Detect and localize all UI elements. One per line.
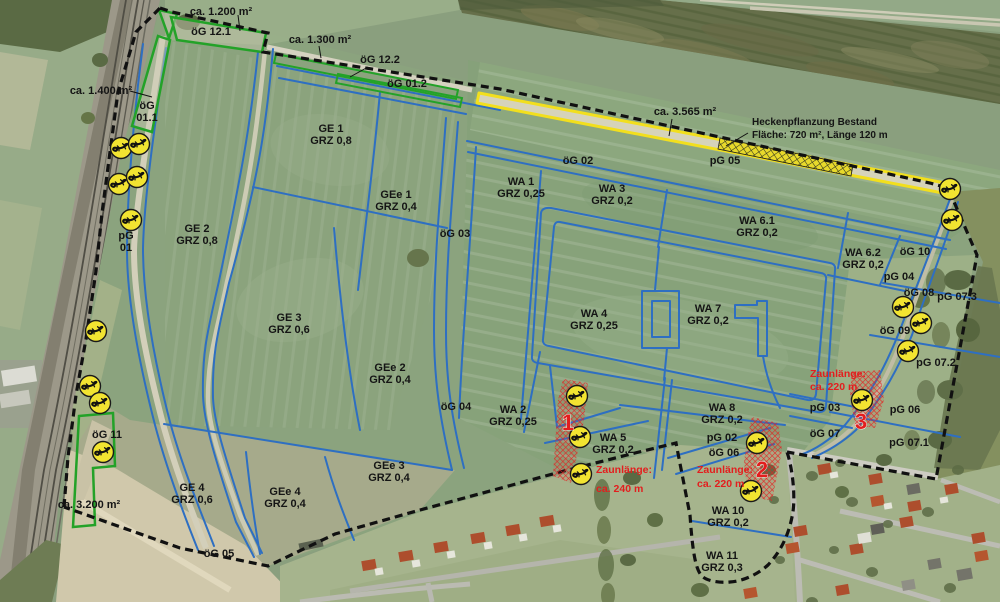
svg-text:GRZ 0,3: GRZ 0,3 [701, 562, 743, 574]
svg-text:Fläche: 720 m², Länge 120 m: Fläche: 720 m², Länge 120 m [752, 130, 888, 141]
svg-text:Zaunlänge:: Zaunlänge: [596, 464, 652, 476]
svg-text:ca. 220 m: ca. 220 m [697, 478, 744, 490]
svg-text:GRZ 0,2: GRZ 0,2 [591, 195, 633, 207]
svg-text:öG 03: öG 03 [440, 228, 471, 240]
svg-text:Heckenpflanzung Bestand: Heckenpflanzung Bestand [752, 117, 877, 128]
svg-text:GRZ 0,25: GRZ 0,25 [570, 320, 618, 332]
svg-text:Zaunlänge:: Zaunlänge: [697, 464, 753, 476]
svg-text:öG 10: öG 10 [900, 246, 931, 258]
svg-text:GEe 4: GEe 4 [269, 486, 301, 498]
svg-text:WA 6.1: WA 6.1 [739, 215, 775, 227]
svg-text:01.1: 01.1 [136, 112, 157, 124]
svg-text:öG 08: öG 08 [904, 287, 935, 299]
svg-text:GRZ 0,4: GRZ 0,4 [368, 472, 410, 484]
svg-text:öG 06: öG 06 [709, 447, 740, 459]
svg-text:pG: pG [118, 230, 133, 242]
svg-text:GRZ 0,2: GRZ 0,2 [592, 444, 634, 456]
svg-text:GE 3: GE 3 [276, 312, 301, 324]
svg-text:öG 09: öG 09 [880, 325, 911, 337]
svg-text:GRZ 0,2: GRZ 0,2 [701, 414, 743, 426]
svg-text:WA 11: WA 11 [706, 550, 738, 562]
svg-text:GRZ 0,4: GRZ 0,4 [375, 201, 417, 213]
svg-text:öG: öG [139, 100, 154, 112]
svg-text:pG 07.2: pG 07.2 [916, 357, 956, 369]
svg-text:GRZ 0,2: GRZ 0,2 [842, 259, 884, 271]
svg-text:GRZ 0,25: GRZ 0,25 [497, 188, 545, 200]
svg-text:GEe 2: GEe 2 [374, 362, 405, 374]
svg-text:öG 02: öG 02 [563, 155, 594, 167]
svg-text:öG 11: öG 11 [92, 429, 122, 441]
svg-text:ca. 1.400 m²: ca. 1.400 m² [70, 85, 133, 97]
svg-text:GRZ 0,2: GRZ 0,2 [707, 517, 749, 529]
svg-text:GRZ 0,25: GRZ 0,25 [489, 416, 537, 428]
svg-text:GEe 3: GEe 3 [373, 460, 404, 472]
svg-text:ca. 1.200 m²: ca. 1.200 m² [190, 6, 253, 18]
svg-text:Zaunlänge:: Zaunlänge: [810, 368, 866, 380]
svg-text:WA 5: WA 5 [600, 432, 627, 444]
svg-text:öG 01.2: öG 01.2 [387, 78, 427, 90]
svg-text:GRZ 0,2: GRZ 0,2 [736, 227, 778, 239]
svg-text:öG 07: öG 07 [810, 428, 841, 440]
svg-text:WA 3: WA 3 [599, 183, 626, 195]
svg-text:GRZ 0,4: GRZ 0,4 [264, 498, 306, 510]
svg-text:pG 05: pG 05 [710, 155, 741, 167]
svg-text:öG 04: öG 04 [441, 401, 472, 413]
svg-text:GE 1: GE 1 [318, 123, 343, 135]
svg-text:GRZ 0,8: GRZ 0,8 [176, 235, 218, 247]
svg-text:ca. 220 m: ca. 220 m [810, 381, 857, 393]
svg-text:ca. 1.300 m²: ca. 1.300 m² [289, 34, 352, 46]
svg-text:ca. 3.200 m²: ca. 3.200 m² [58, 499, 121, 511]
svg-text:WA 10: WA 10 [712, 505, 745, 517]
svg-text:GRZ 0,6: GRZ 0,6 [171, 494, 213, 506]
svg-text:GEe 1: GEe 1 [380, 189, 411, 201]
svg-text:GRZ 0,4: GRZ 0,4 [369, 374, 411, 386]
svg-text:öG 05: öG 05 [204, 548, 235, 560]
svg-text:WA 4: WA 4 [581, 308, 608, 320]
svg-text:GE 4: GE 4 [179, 482, 205, 494]
svg-text:ca. 240 m: ca. 240 m [596, 483, 643, 495]
svg-text:01: 01 [120, 242, 132, 254]
svg-text:GRZ 0,6: GRZ 0,6 [268, 324, 310, 336]
svg-text:WA 7: WA 7 [695, 303, 722, 315]
svg-text:pG 04: pG 04 [884, 271, 915, 283]
svg-text:pG 07.3: pG 07.3 [937, 291, 977, 303]
svg-text:pG 02: pG 02 [707, 432, 738, 444]
svg-text:GE 2: GE 2 [184, 223, 209, 235]
svg-text:2: 2 [756, 457, 768, 482]
svg-text:3: 3 [855, 409, 867, 434]
svg-text:WA 2: WA 2 [500, 404, 527, 416]
svg-text:pG 03: pG 03 [810, 402, 841, 414]
svg-text:WA 1: WA 1 [508, 176, 535, 188]
svg-text:GRZ 0,8: GRZ 0,8 [310, 135, 352, 147]
svg-text:GRZ 0,2: GRZ 0,2 [687, 315, 729, 327]
svg-text:WA 6.2: WA 6.2 [845, 247, 881, 259]
svg-text:pG 07.1: pG 07.1 [889, 437, 929, 449]
svg-text:ca. 3.565 m²: ca. 3.565 m² [654, 106, 717, 118]
svg-text:pG 06: pG 06 [890, 404, 921, 416]
svg-text:WA 8: WA 8 [709, 402, 736, 414]
svg-text:1: 1 [562, 410, 574, 435]
svg-text:öG 12.2: öG 12.2 [360, 54, 400, 66]
svg-text:öG 12.1: öG 12.1 [191, 26, 231, 38]
